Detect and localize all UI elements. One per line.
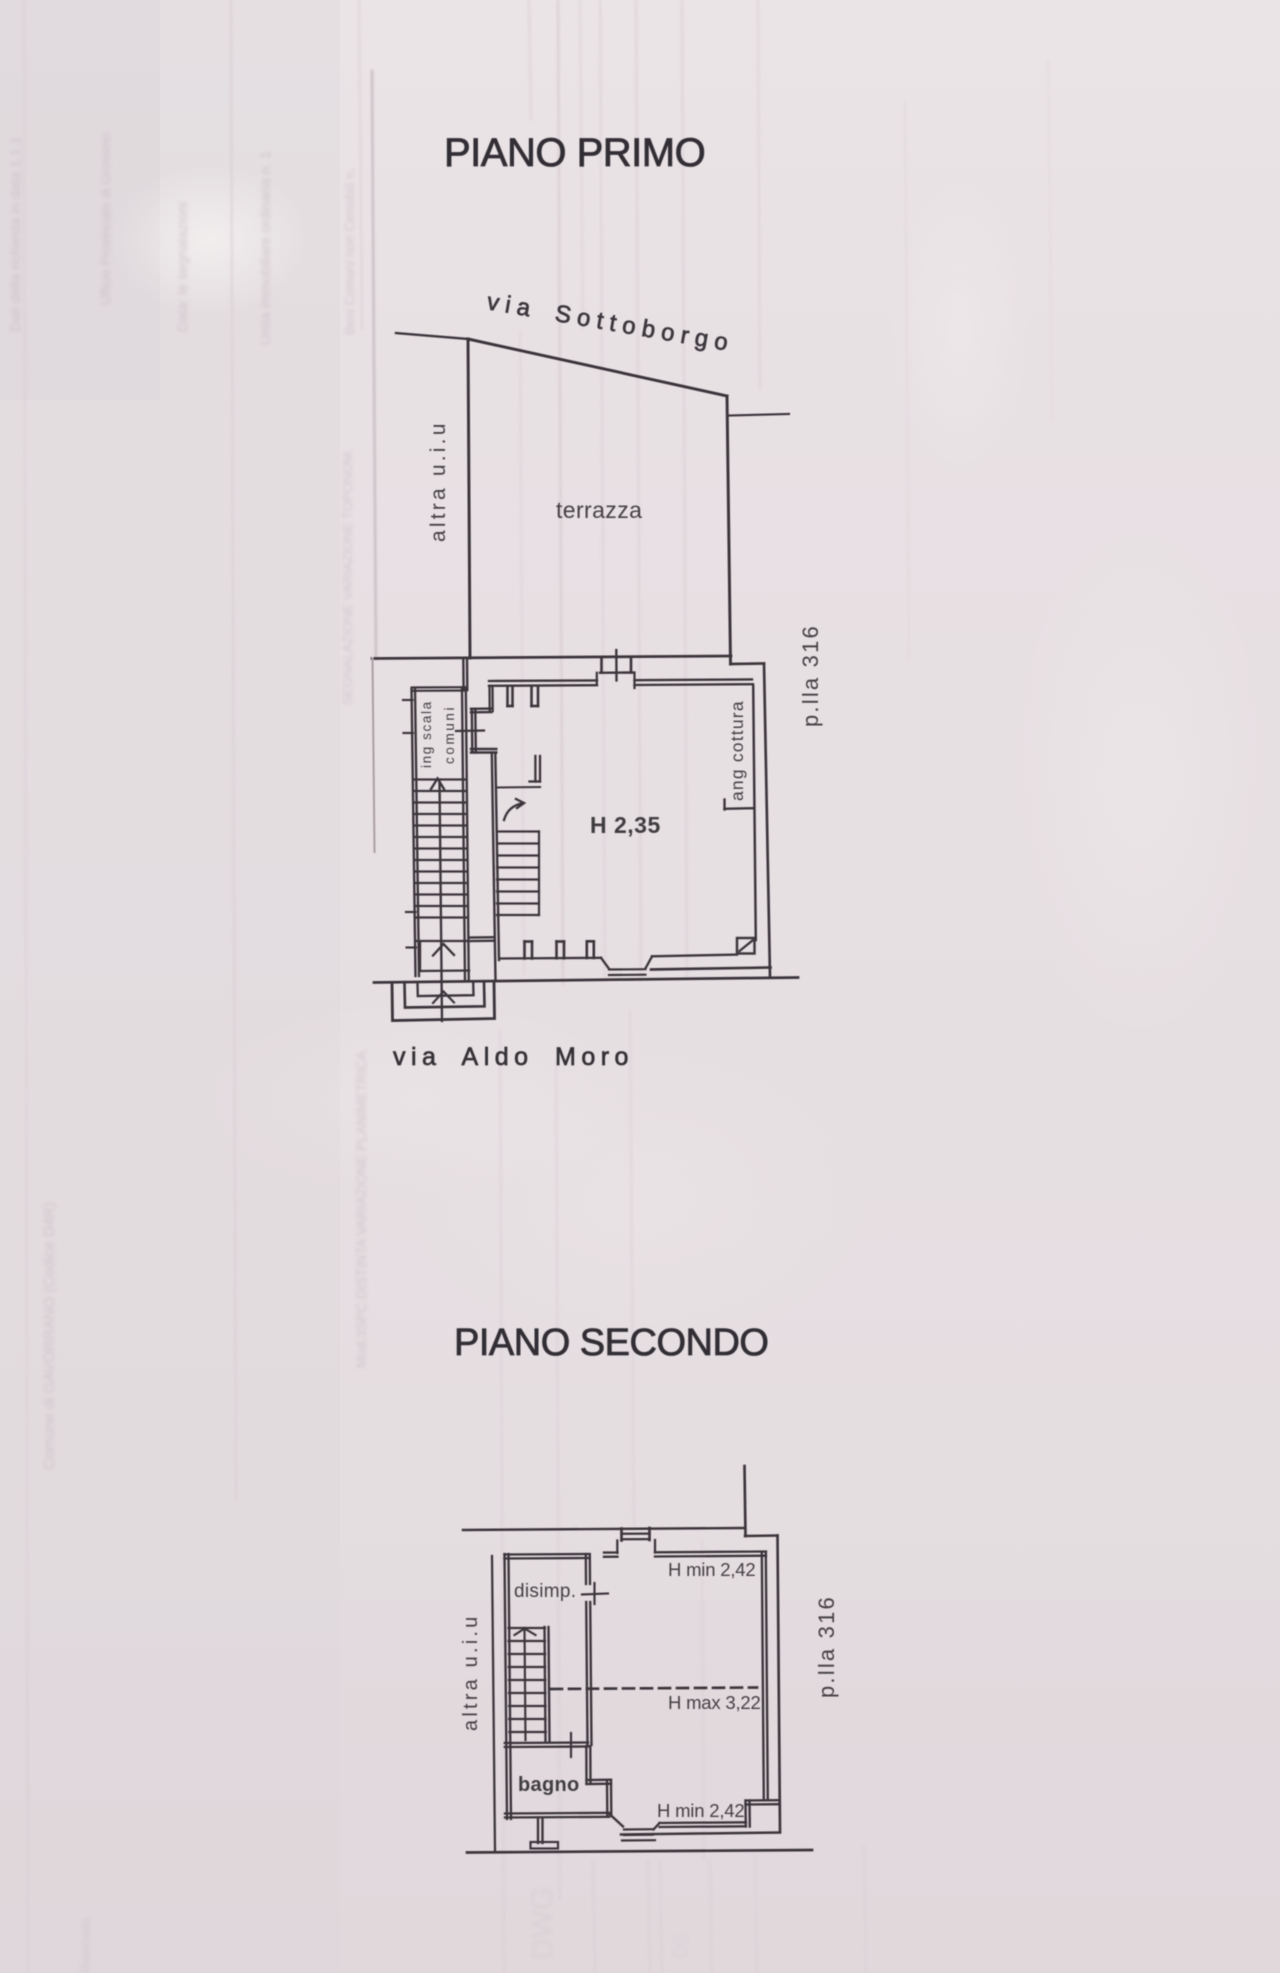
svg-text:bagno: bagno [518,1774,580,1796]
svg-text:Data: le segnalazioni: Data: le segnalazioni [174,202,190,332]
svg-text:H min 2,42: H min 2,42 [668,1559,755,1580]
svg-text:Riservato: Riservato [78,1918,93,1973]
svg-text:Dati della richiesta in data 1: Dati della richiesta in data 1.1.1 [7,136,23,332]
svg-text:Beni Comuni non Censibili n.: Beni Comuni non Censibili n. [342,168,357,335]
svg-text:DWG: DWG [526,1887,559,1960]
svg-text:06: 06 [668,1934,693,1958]
svg-text:altra u.i.u: altra u.i.u [427,420,450,542]
svg-text:PIANO PRIMO: PIANO PRIMO [444,131,705,175]
svg-text:ing scala: ing scala [419,700,434,768]
svg-text:Unita immobiliare ordinaria n.: Unita immobiliare ordinaria n. 1 [257,151,273,345]
svg-text:H max 3,22: H max 3,22 [668,1692,761,1713]
svg-text:comuni: comuni [442,705,457,764]
svg-text:altra u.i.u: altra u.i.u [460,1614,482,1731]
svg-text:ang cottura: ang cottura [727,700,747,801]
svg-text:disimp.: disimp. [514,1581,576,1602]
svg-text:H 2,35: H 2,35 [590,812,661,838]
svg-text:p.lla 316: p.lla 316 [798,624,823,727]
svg-text:PIANO SECONDO: PIANO SECONDO [454,1322,768,1364]
svg-text:Comune di GAVORRANO (Codice D4: Comune di GAVORRANO (Codice D4R) [41,1202,58,1470]
svg-text:Mod.3SPC DISTINTA VARIAZIONE P: Mod.3SPC DISTINTA VARIAZIONE PLANIMETRIC… [354,1051,369,1368]
svg-text:Ufficio Provinciale di Grosset: Ufficio Provinciale di Grosseto [98,132,113,305]
svg-text:H min 2,42: H min 2,42 [657,1800,744,1821]
svg-text:terrazza: terrazza [556,497,642,523]
svg-text:SEGNALAZIONE VARIAZIONE TOPONO: SEGNALAZIONE VARIAZIONE TOPONOM. [340,449,355,705]
svg-text:p.lla 316: p.lla 316 [814,1595,839,1698]
svg-text:via Aldo Moro: via Aldo Moro [393,1043,634,1071]
